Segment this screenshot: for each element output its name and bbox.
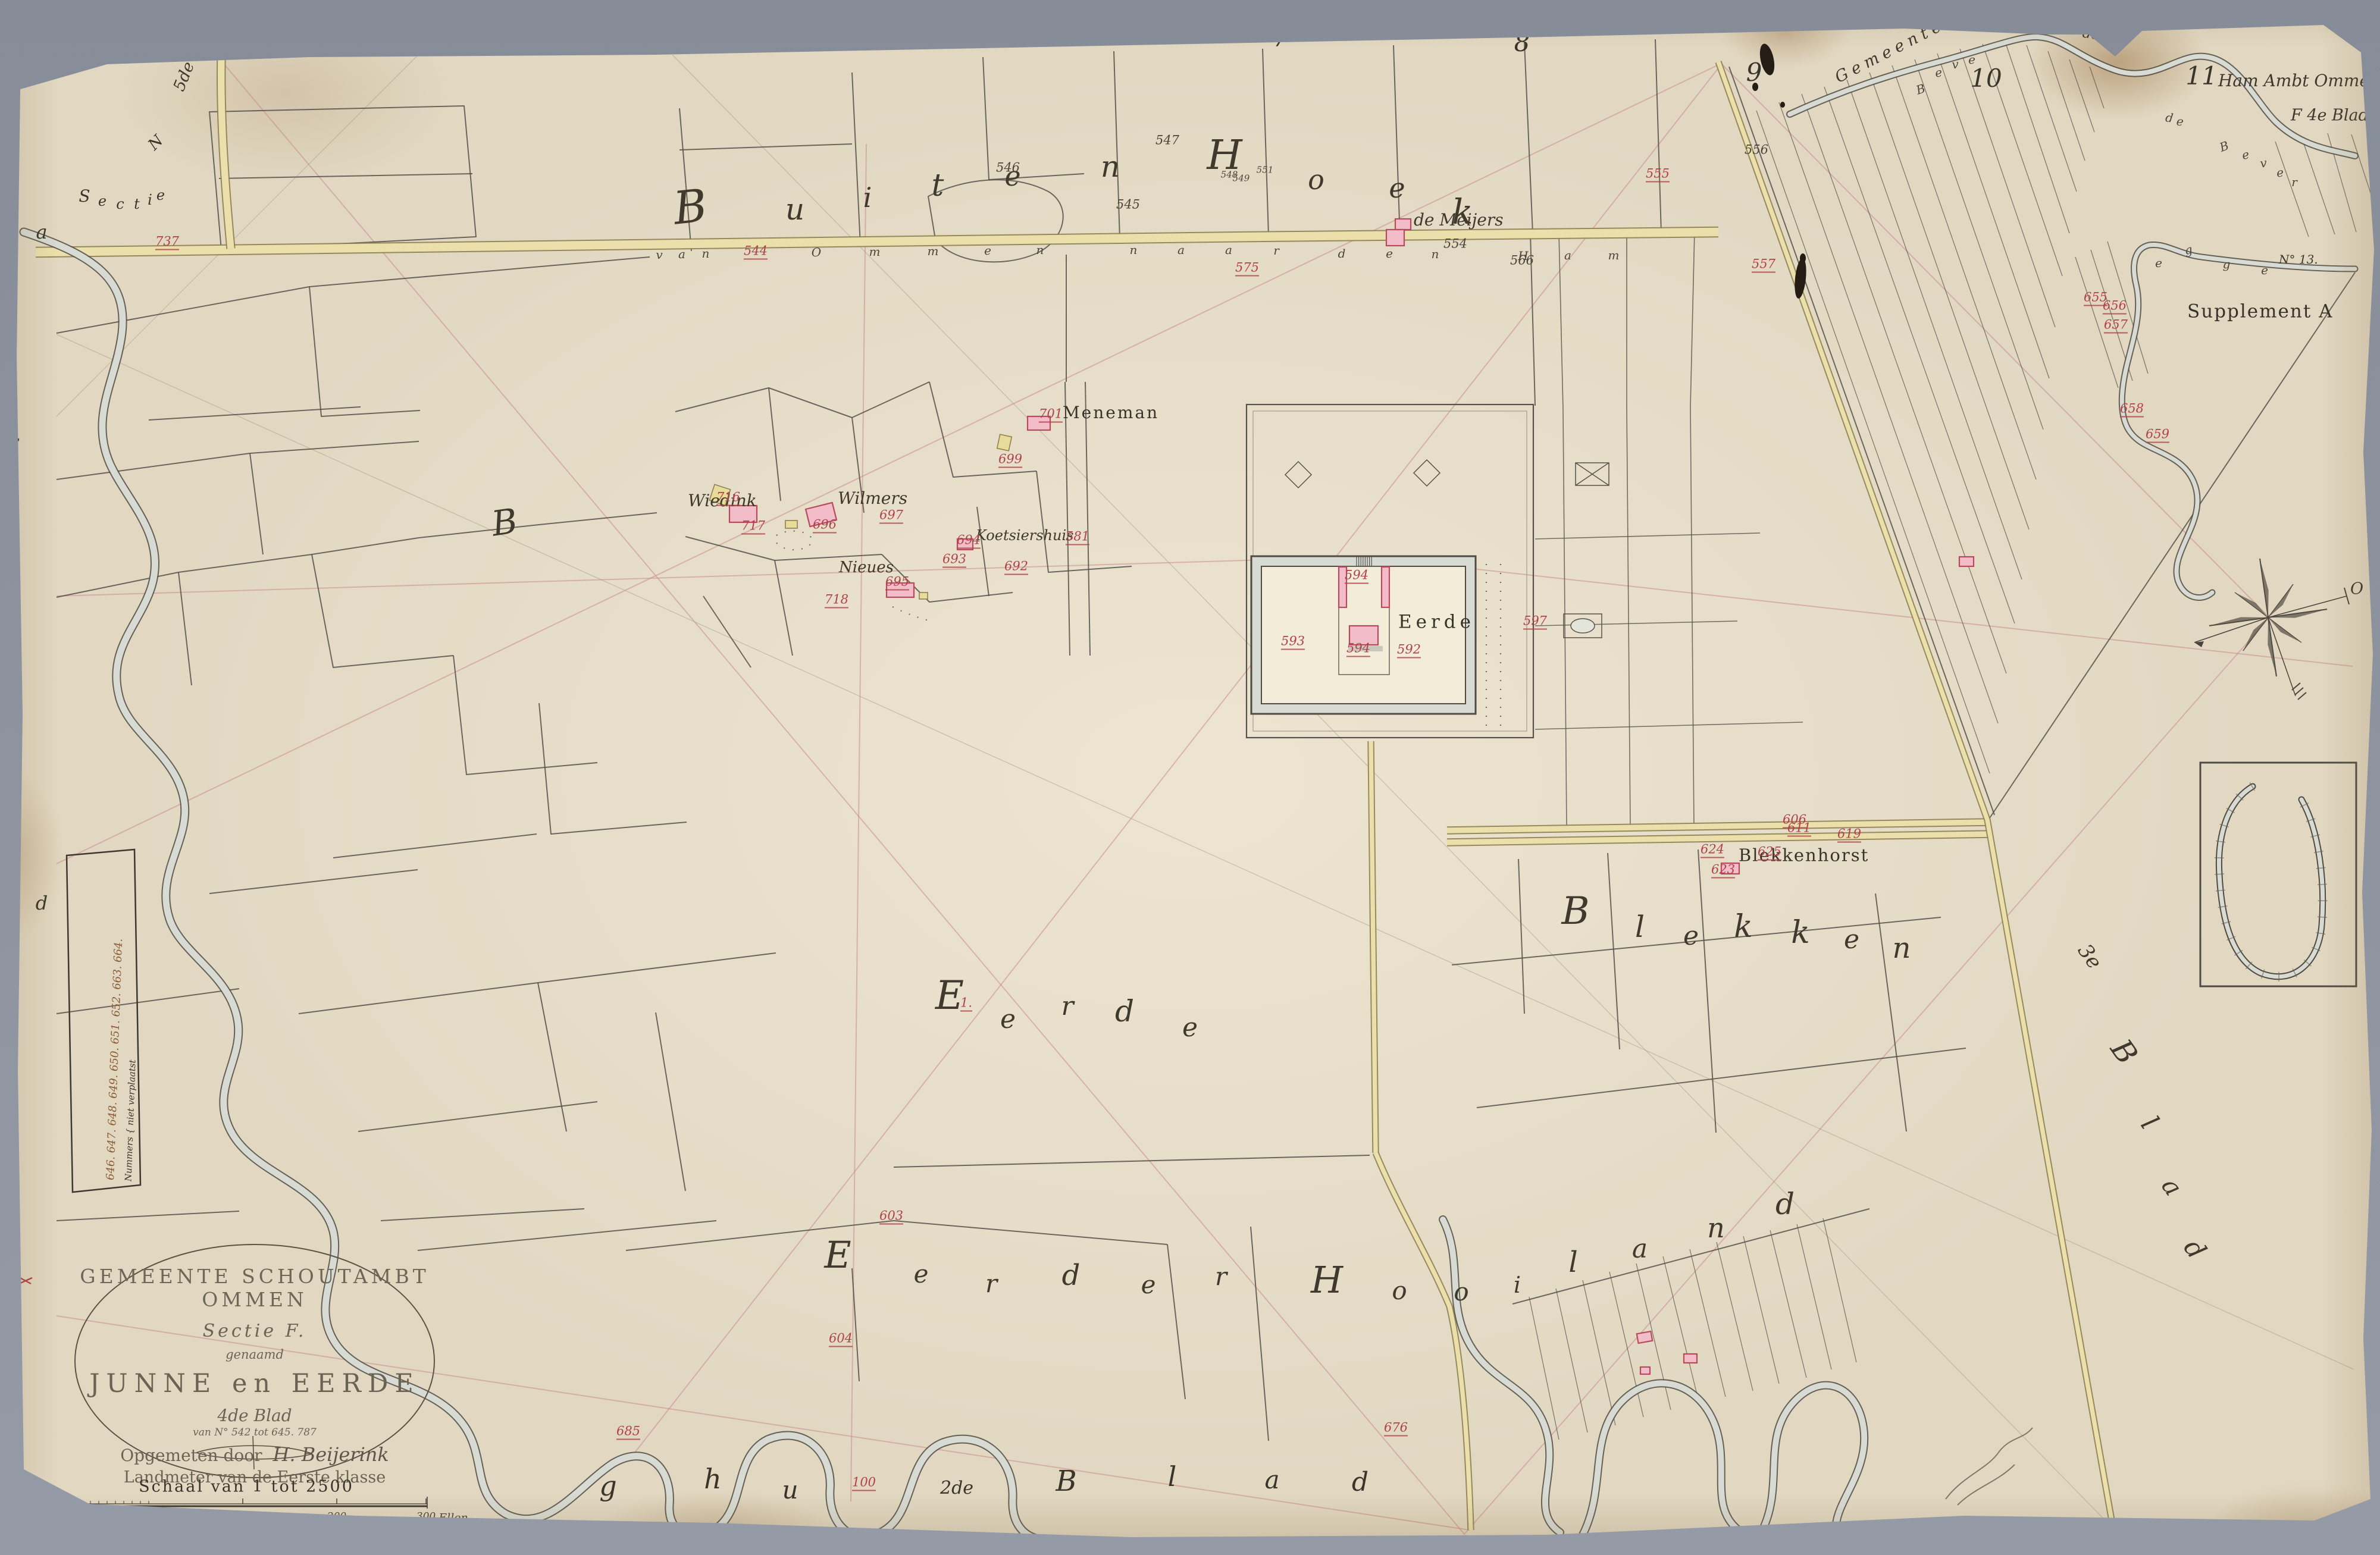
sheet-edge-mark: 9 (1746, 60, 1762, 85)
parcel-number: 696 (813, 519, 837, 534)
area-name-letter: d (1062, 1261, 1081, 1290)
title-cartouche: GEMEENTE SCHOUTAMBT OMMEN Sectie F. gena… (76, 1265, 433, 1461)
road-name-letter: n (1130, 244, 1138, 256)
road-name-letter: e (1386, 247, 1393, 259)
parcel-number: 555 (1646, 168, 1670, 183)
parcel-number: 701 (1039, 408, 1063, 423)
sheet-edge-mark: 2de (940, 1479, 973, 1497)
area-name-letter: e (1683, 923, 1699, 949)
sheet-edge-mark: 10 (1970, 66, 2002, 91)
road-name-letter: v (1951, 58, 1959, 71)
sheet-edge-mark: h (704, 1465, 722, 1493)
place-label: Gemeente (1833, 17, 1947, 86)
road-name-letter: e (2176, 115, 2185, 127)
parcel-number: 566 (1510, 255, 1534, 267)
parcel-number: 556 (1745, 144, 1768, 156)
area-name-letter: l (1568, 1248, 1577, 1277)
road-name-letter: e (1968, 54, 1975, 65)
parcel-number: 581 (1066, 531, 1089, 545)
area-name-letter: d (1115, 996, 1134, 1026)
road-name-letter: g (2184, 243, 2194, 256)
area-name-letter: e (1000, 1007, 1016, 1033)
sheet-edge-mark: t (134, 197, 140, 211)
parcel-number: 695 (885, 576, 909, 591)
scale-tick-label: 300 (416, 1512, 436, 1522)
parcel-number: 547 (1155, 134, 1179, 147)
sheet-edge-mark: 7 (1273, 26, 1289, 51)
place-label: den (2081, 27, 2109, 44)
place-label: 5de Blad (171, 21, 212, 93)
parcel-number: 692 (1004, 560, 1028, 575)
sheet-edge-mark: l (1168, 1463, 1177, 1490)
road-name-letter: e (1934, 66, 1943, 79)
sheet-edge-mark: B (1056, 1467, 1076, 1496)
parcel-number: 676 (1384, 1422, 1408, 1437)
parcel-number: 657 (2104, 319, 2128, 334)
area-name-letter: l (2136, 1112, 2162, 1134)
place-label: de Meijers (1414, 212, 1504, 228)
sheet-edge-mark: e (156, 188, 165, 202)
area-name-letter: B (490, 503, 519, 541)
sheet-edge-mark: 5 (796, 14, 812, 39)
road-name-letter: a (1564, 249, 1571, 261)
road-name-letter: n (1036, 244, 1044, 256)
place-label: Meneman (1063, 405, 1159, 421)
parcel-number: 593 (1281, 635, 1305, 650)
parcel-number: 658 (2120, 403, 2144, 418)
area-name-letter: e (914, 1262, 929, 1287)
sheet-edge-mark: N (146, 133, 166, 153)
sheet-edge-mark: 6 (1017, 22, 1033, 47)
road-name-letter: e (2155, 257, 2162, 269)
place-label: Nieues (839, 560, 894, 575)
road-name-letter: m (869, 246, 881, 258)
area-name-letter: a (1632, 1236, 1648, 1262)
place-label: Wilmers (838, 490, 907, 507)
parcel-number: 717 (741, 520, 765, 535)
parcel-number: 611 (1787, 822, 1811, 837)
parcel-number: 551 (1257, 166, 1274, 175)
parcel-number: 619 (1837, 828, 1861, 843)
sheet-edge-mark: d (1352, 1469, 1368, 1496)
area-name-letter: o (1392, 1278, 1407, 1303)
parcel-number: 594 (1345, 569, 1368, 584)
parcel-number: 699 (998, 453, 1022, 468)
road-name-letter: d (1338, 247, 1346, 259)
parcel-number: 625 (1758, 846, 1781, 861)
parcel-number: 546 (996, 162, 1020, 174)
area-name-letter: H (1311, 1262, 1343, 1299)
cartouche-sheet: 4de Blad (217, 1406, 292, 1425)
area-name-letter: r (1215, 1264, 1227, 1289)
area-name-letter: 3e (2074, 940, 2105, 973)
parcel-number: 659 (2146, 428, 2169, 443)
road-name-letter: r (2291, 176, 2297, 188)
cartouche-surveyed-by: Opgemeten door (120, 1446, 262, 1465)
area-name-letter: B (2106, 1034, 2143, 1070)
sheet-edge-mark: 4 (562, 16, 578, 41)
cartouche-section: Sectie F. (203, 1321, 307, 1341)
sheet-edge-mark: c (9, 432, 20, 451)
parcel-number: 716 (716, 491, 740, 506)
parcel-number: 656 (2103, 300, 2127, 315)
sheet-edge-mark: u (782, 1478, 798, 1503)
parcel-number: 737 (155, 236, 179, 250)
area-name-letter: n (1893, 934, 1911, 963)
paper-sheet: GEMEENTE SCHOUTAMBT OMMEN Sectie F. gena… (0, 0, 2380, 1555)
sheet-edge-mark: i (148, 193, 152, 207)
area-name-letter: o (1308, 166, 1324, 193)
sheet-edge-mark: c (116, 197, 124, 211)
area-name-letter: E (935, 976, 964, 1015)
road-name-letter: m (928, 245, 939, 257)
parcel-number: 697 (879, 509, 903, 524)
road-name-letter: O (812, 246, 821, 258)
parcel-number: 1. (960, 997, 972, 1012)
scale-tick-label: 200 (327, 1512, 346, 1522)
parcel-number: 594 (1346, 642, 1370, 657)
area-name-letter: E (824, 1237, 851, 1274)
parcel-number: 694 (957, 534, 981, 549)
parcel-number: 718 (825, 594, 848, 609)
map-text-layer: GEMEENTE SCHOUTAMBT OMMEN Sectie F. gena… (0, 0, 2380, 1555)
area-name-letter: n (1101, 152, 1120, 181)
place-label: F 4e Blad (2291, 108, 2369, 124)
parcel-number: 549 (1233, 174, 1250, 183)
sheet-edge-mark: 2 (86, 24, 102, 49)
margin-note: 646. 647. 648. 649. 650. 651. 652. 663. … (105, 938, 124, 1180)
parcel-number: 557 (1752, 258, 1775, 273)
parcel-number: 554 (1443, 238, 1467, 250)
parcel-number: 624 (1701, 844, 1724, 858)
parcel-number: 685 (616, 1425, 640, 1440)
area-name-letter: i (1514, 1274, 1521, 1296)
area-name-letter: k (1734, 911, 1753, 942)
road-name-letter: e (2276, 167, 2284, 179)
sheet-edge-mark: a (36, 222, 47, 242)
road-name-letter: a (678, 248, 685, 260)
surveyor-signature: H. Beijerink (273, 1443, 389, 1466)
sheet-edge-mark: S (79, 188, 90, 205)
scale-label: Schaal van 1 tot 2500 (139, 1479, 354, 1495)
road-name-letter: e (2241, 148, 2250, 161)
scale-tick-label: 100 (233, 1512, 252, 1522)
area-name-letter: r (985, 1271, 997, 1296)
road-name-letter: g (2223, 258, 2231, 270)
road-name-letter: m (1608, 249, 1620, 261)
road-name-letter: e (984, 244, 991, 256)
place-label: Eerde (1398, 613, 1475, 632)
road-name-letter: n (702, 247, 710, 259)
area-name-letter: r (1061, 993, 1073, 1020)
area-name-letter: B (671, 183, 709, 231)
place-label: O (2350, 581, 2363, 597)
parcel-number: 575 (1235, 262, 1259, 277)
road-name-letter: d (2165, 111, 2174, 124)
parcel-number: 544 (744, 245, 768, 260)
parcel-number: 597 (1523, 615, 1547, 630)
place-label: Supplement A (2187, 303, 2334, 321)
sheet-edge-mark: g (599, 1472, 616, 1500)
road-name-letter: r (1273, 244, 1279, 256)
sheet-edge-mark: d (36, 894, 48, 913)
area-name-letter: k (1791, 917, 1810, 948)
parcel-number: 100 (852, 1476, 876, 1491)
sheet-edge-mark: b (6, 395, 18, 414)
area-name-letter: t (932, 170, 944, 201)
cartouche-municipality: GEMEENTE SCHOUTAMBT OMMEN (76, 1265, 433, 1311)
parcel-number: 604 (829, 1333, 853, 1347)
cartouche-name: JUNNE en EERDE (89, 1369, 420, 1399)
area-name-letter: e (1141, 1272, 1156, 1297)
road-name-letter: a (1225, 244, 1232, 256)
parcel-number: 592 (1397, 644, 1421, 659)
cartouche-genaamd: genaamd (226, 1347, 284, 1362)
sheet-edge-mark: 8 (1514, 30, 1530, 55)
area-name-letter: o (1454, 1280, 1468, 1305)
road-name-letter: e (2261, 264, 2268, 276)
place-label: N° 13. (2279, 253, 2318, 265)
road-name-letter: B (1915, 82, 1927, 96)
area-name-letter: u (785, 195, 804, 224)
parcel-number: 623 (1711, 864, 1735, 879)
sheet-edge-mark: e (98, 194, 107, 208)
area-name-letter: e (1844, 927, 1859, 953)
scale-unit-label: Ellen (439, 1513, 468, 1524)
parcel-number: 693 (942, 553, 966, 568)
area-name-letter: B (1561, 892, 1589, 930)
margin-note: Nummers { niet verplaatst (124, 1059, 137, 1181)
road-name-letter: a (1178, 244, 1185, 256)
area-name-letter: e (1182, 1015, 1198, 1041)
parcel-number: 603 (879, 1210, 903, 1225)
sheet-edge-mark: 3 (317, 18, 333, 43)
parcel-number: 545 (1116, 199, 1140, 211)
area-name-letter: i (863, 184, 872, 211)
road-name-letter: B (2218, 139, 2231, 153)
place-label: Koetsiershuis (976, 528, 1073, 543)
road-name-letter: n (1432, 248, 1439, 260)
area-name-letter: l (1635, 912, 1645, 942)
sheet-edge-mark: 11 (2185, 64, 2217, 89)
map-sheet-stage: GEMEENTE SCHOUTAMBT OMMEN Sectie F. gena… (0, 0, 2380, 1555)
area-name-letter: a (2157, 1174, 2187, 1200)
area-name-letter: d (1775, 1189, 1795, 1219)
cartouche-parcel-range: van N° 542 tot 645. 787 (193, 1427, 317, 1438)
road-name-letter: v (656, 249, 662, 261)
area-name-letter: n (1707, 1214, 1725, 1242)
place-label: Ham Ambt Ommen. (2218, 73, 2380, 89)
area-name-letter: e (1389, 174, 1405, 202)
road-name-letter: v (2259, 156, 2268, 169)
sheet-edge-mark: a (1264, 1468, 1279, 1493)
area-name-letter: d (2179, 1235, 2210, 1264)
